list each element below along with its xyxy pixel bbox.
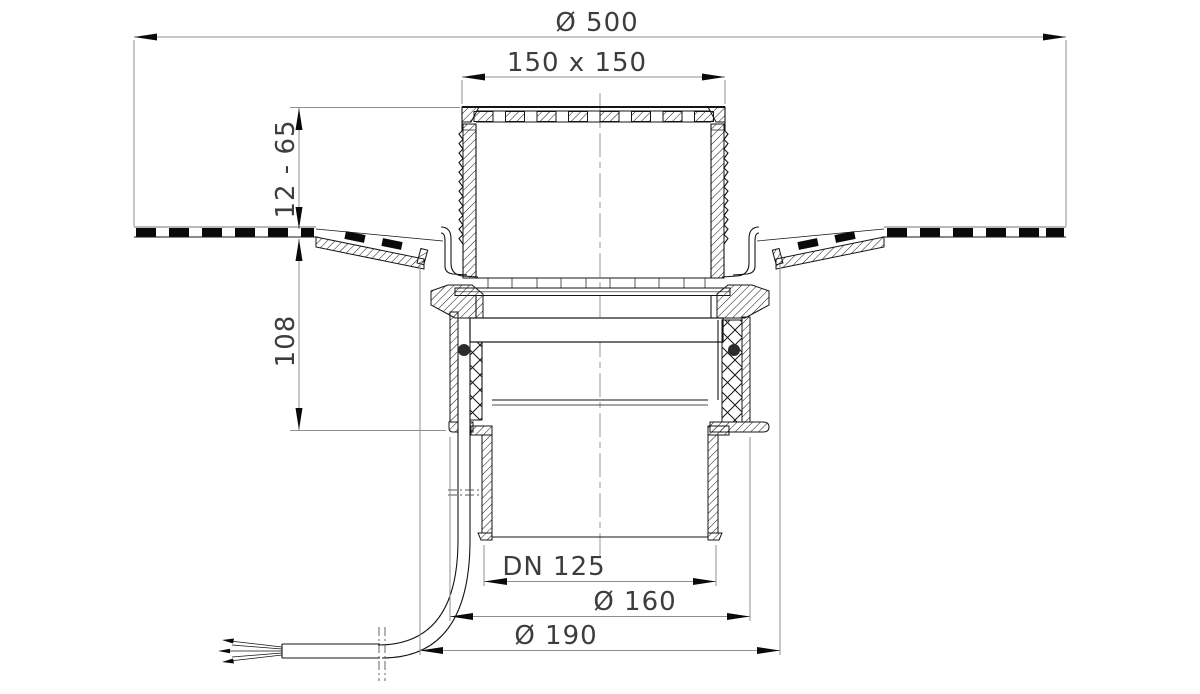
bowl-rim-right (722, 227, 759, 277)
cable-sheath (282, 644, 380, 658)
riser-teeth-left (459, 130, 463, 278)
stripped-wires (218, 639, 282, 664)
label-dn125: DN 125 (502, 552, 605, 582)
label-12-65: 12 - 65 (271, 119, 301, 218)
gasket-seat (455, 288, 730, 318)
label-d160: Ø 160 (593, 587, 676, 617)
dimension-150x150: 150 x 150 (462, 48, 725, 104)
o-ring-left (458, 344, 470, 356)
heating-cable (218, 356, 479, 681)
technical-drawing-canvas: Ø 500 150 x 150 12 - 65 108 DN 125 (0, 0, 1200, 694)
label-108: 108 (271, 315, 301, 368)
o-ring-right (728, 344, 740, 356)
roof-drain-section-drawing: Ø 500 150 x 150 12 - 65 108 DN 125 (0, 0, 1200, 694)
riser-teeth-right (724, 130, 728, 278)
insulation-right (722, 320, 742, 422)
flange-sheet-right (757, 229, 884, 269)
dimension-12-65: 12 - 65 (271, 108, 460, 230)
label-d190: Ø 190 (514, 621, 597, 651)
clamp-casting-right (717, 285, 769, 318)
grate-bars (474, 112, 714, 122)
membrane-left (134, 227, 318, 237)
gasket-band (476, 278, 711, 288)
body-outer-shell-left (449, 312, 473, 432)
membrane-right (882, 227, 1066, 237)
insulation-left (470, 342, 482, 420)
label-d500: Ø 500 (555, 8, 638, 38)
flange-sheet-left (316, 229, 443, 269)
riser (459, 107, 728, 288)
label-150x150: 150 x 150 (507, 48, 647, 78)
adjustment-ring (470, 318, 723, 342)
grate (462, 107, 725, 122)
dimension-dn125: DN 125 (484, 545, 716, 586)
